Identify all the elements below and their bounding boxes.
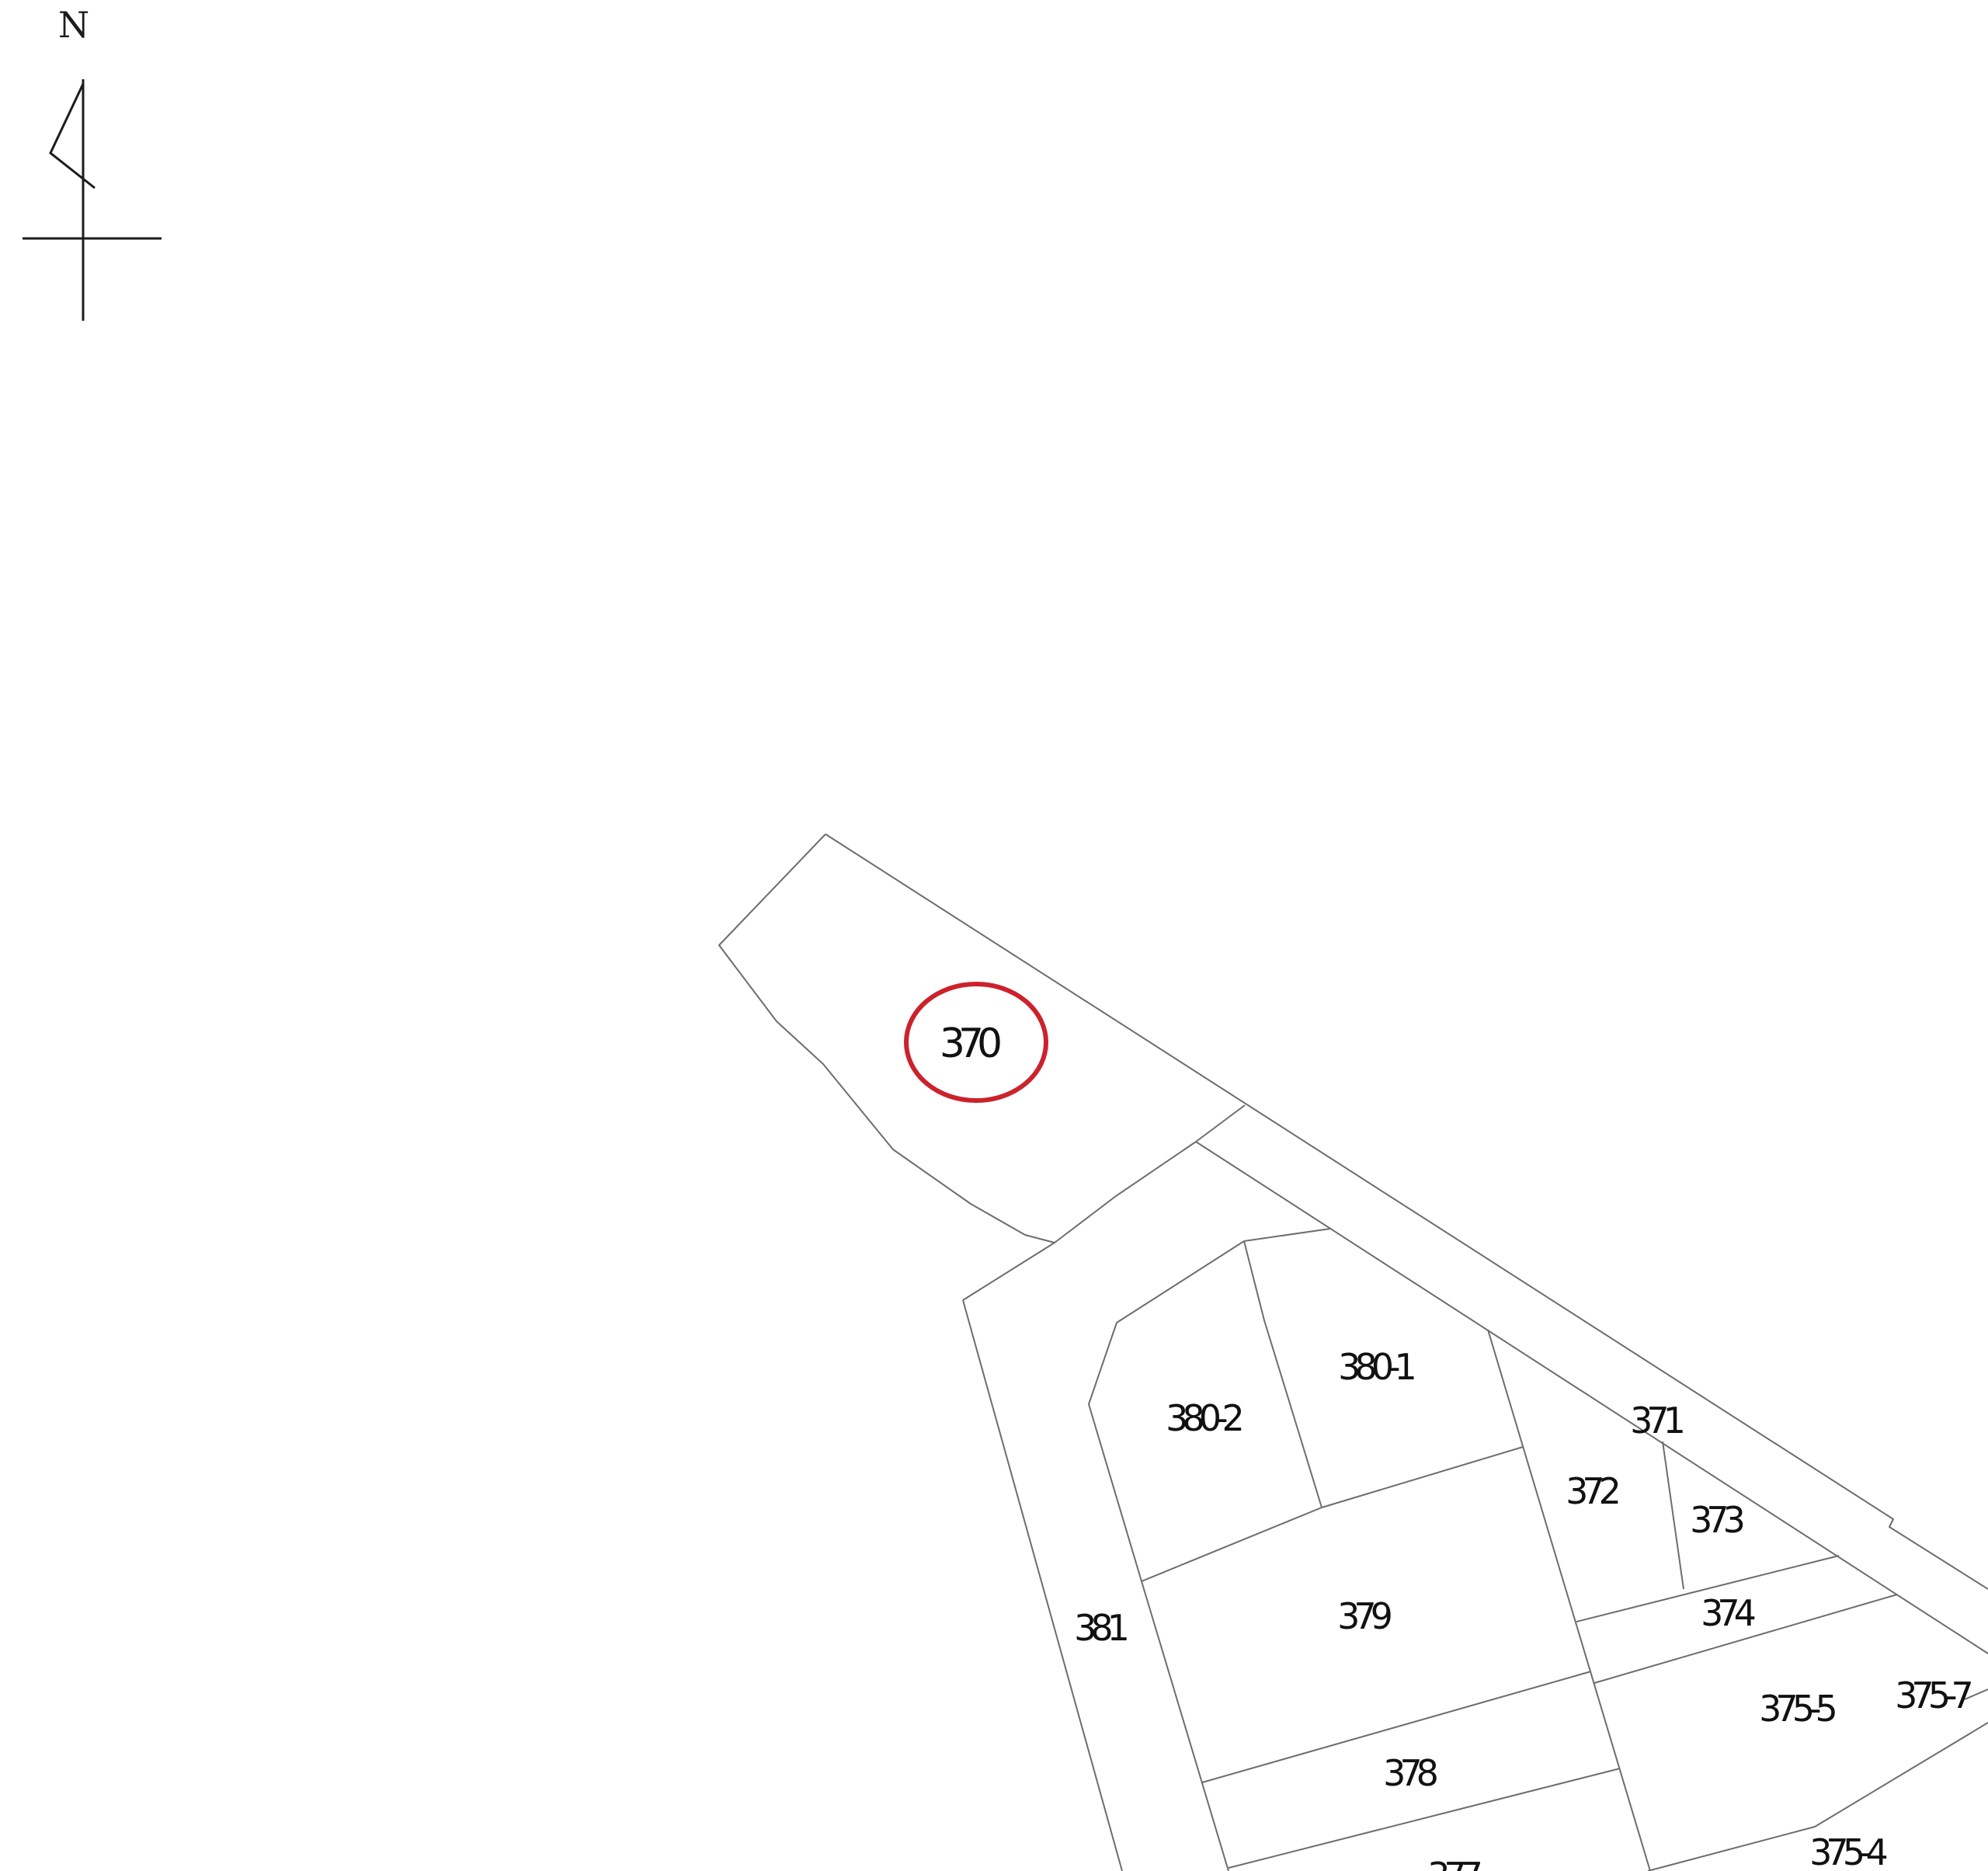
parcel-380-1-bottom-edge <box>1322 1447 1523 1508</box>
parcel-380-2-right-edge <box>1244 1241 1322 1508</box>
parcel-label-379: 379 <box>1337 1595 1392 1637</box>
parcel-381-top-edge <box>963 1243 1055 1300</box>
cadastral-map-page: N 370371372373374375-5375-7375-437737837… <box>0 0 1988 1871</box>
north-arrow: N <box>23 4 162 321</box>
parcel-380-2-bottom-edge <box>1142 1508 1322 1581</box>
road-371-lower-edge <box>1196 1142 1988 1654</box>
parcel-380-1-top-edge <box>1244 1229 1330 1241</box>
north-arrow-line <box>50 84 95 188</box>
parcel-label-370: 370 <box>940 1021 1000 1067</box>
parcel-372-373-divider <box>1663 1442 1684 1589</box>
parcel-381-left-edge <box>963 1300 1122 1871</box>
parcel-label-374: 374 <box>1701 1592 1755 1634</box>
parcel-label-373: 373 <box>1690 1499 1743 1541</box>
parcel-label-375-7: 375-7 <box>1895 1675 1971 1716</box>
parcel-label-381: 381 <box>1074 1607 1128 1649</box>
parcel-label-372: 372 <box>1566 1470 1618 1512</box>
parcel-label-377: 377 <box>1427 1855 1481 1871</box>
edge-fragment-right <box>1965 1689 1988 1699</box>
parcel-label-380-1: 380-1 <box>1338 1346 1414 1388</box>
parcel-labels: 370371372373374375-5375-7375-43773783793… <box>940 1021 1972 1871</box>
parcel-label-371: 371 <box>1630 1400 1684 1442</box>
road-371-upper-edge <box>825 834 1988 1589</box>
parcel-label-375-4: 375-4 <box>1809 1831 1886 1871</box>
north-label: N <box>58 4 89 46</box>
parcel-label-375-5: 375-5 <box>1759 1688 1835 1730</box>
parcel-label-378: 378 <box>1383 1752 1437 1794</box>
parcel-label-380-2: 380-2 <box>1166 1397 1241 1439</box>
cadastral-map-canvas: N 370371372373374375-5375-7375-437737837… <box>0 0 1988 1871</box>
block-spine-boundary <box>1488 1330 1650 1871</box>
